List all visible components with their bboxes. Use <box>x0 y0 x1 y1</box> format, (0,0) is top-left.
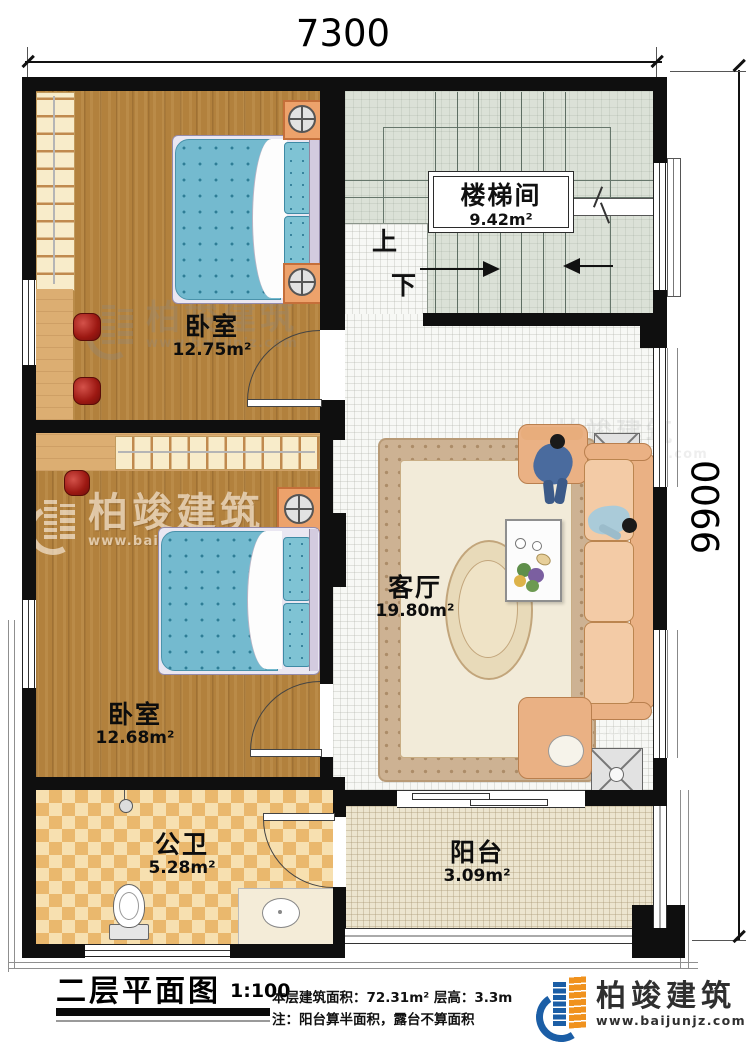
extension-line <box>692 940 746 941</box>
wall <box>22 77 667 91</box>
area-note: 本层建筑面积：72.31m² 层高：3.3m <box>272 986 512 1006</box>
brand-block: 柏竣建筑 www.baijunjz.com <box>596 980 746 1028</box>
balcony-railing <box>345 928 632 944</box>
bed-sheet <box>252 139 287 298</box>
roof-edge-line <box>8 962 698 963</box>
room-area: 12.68m² <box>70 729 200 748</box>
room-area: 5.28m² <box>117 859 247 878</box>
stair-tread <box>521 92 522 180</box>
arrow-left-icon <box>563 258 580 274</box>
sheet-title: 二层平面图 <box>56 966 221 1010</box>
room-area: 3.09m² <box>412 867 542 886</box>
stair-tread <box>457 92 458 180</box>
room-name: 卧室 <box>70 701 200 729</box>
window-icon <box>22 600 35 688</box>
dimension-line-right <box>738 70 740 941</box>
door-opening <box>320 330 345 400</box>
stool-icon <box>73 377 101 405</box>
window-sill <box>667 348 678 487</box>
balcony-railing <box>653 806 667 928</box>
room-label-bedroom-bottom: 卧室 12.68m² <box>70 701 200 748</box>
wall <box>653 77 667 163</box>
pillow-icon <box>283 603 311 667</box>
brand-logo-icon <box>538 976 592 1034</box>
stair-outline <box>610 127 611 313</box>
sink-drain <box>278 910 282 914</box>
room-area: 9.42m² <box>429 210 573 229</box>
stair-tread <box>543 92 544 180</box>
window-icon <box>653 630 666 758</box>
cup-icon <box>532 541 542 551</box>
toilet-bowl <box>119 892 139 920</box>
lamp-cross <box>301 270 303 294</box>
flower-icon <box>526 580 539 592</box>
wall <box>345 790 397 806</box>
door-leaf <box>263 813 335 821</box>
bed-sheet <box>247 531 282 669</box>
sofa-pillow <box>548 735 584 767</box>
arrow-right-icon <box>483 261 500 277</box>
dimension-line-top <box>25 61 662 63</box>
door-opening <box>320 684 333 757</box>
room-name: 楼梯间 <box>429 176 573 212</box>
door-leaf <box>250 749 322 757</box>
stair-outline <box>383 127 384 223</box>
window-icon <box>653 163 666 290</box>
shower-head-icon <box>119 799 133 813</box>
window-frame <box>667 158 681 297</box>
brand-url: www.baijunjz.com <box>596 1013 746 1028</box>
balcony-note: 注：阳台算半面积，露台不算面积 <box>272 1008 475 1028</box>
sofa-cushion <box>584 541 634 622</box>
window-icon <box>85 944 230 957</box>
title-underline-thin <box>56 1020 270 1022</box>
stair-down-label: 下 <box>391 266 416 302</box>
room-label-living: 客厅 19.80m² <box>350 574 480 621</box>
dimension-height: 9900 <box>687 449 727 565</box>
side-table-lamp <box>609 767 624 782</box>
wardrobe-rail <box>53 96 55 284</box>
wardrobe-rail <box>118 451 315 453</box>
bed-headboard <box>309 529 318 671</box>
sliding-door-panel <box>470 799 548 806</box>
wall <box>320 400 345 440</box>
pillow-icon <box>283 537 311 601</box>
door-opening <box>333 817 346 887</box>
wall <box>320 91 345 330</box>
room-name: 客厅 <box>350 574 480 602</box>
room-label-bedroom-top: 卧室 12.75m² <box>147 313 277 360</box>
stair-direction-arrow <box>420 268 483 270</box>
sofa-cushion <box>584 622 634 704</box>
title-underline-thick <box>56 1008 270 1016</box>
pillow-icon <box>284 142 312 214</box>
flower-icon <box>514 575 526 587</box>
room-label-bathroom: 公卫 5.28m² <box>117 831 247 878</box>
stair-direction-arrow <box>580 265 613 267</box>
wall <box>22 365 36 600</box>
stair-tread <box>565 92 566 180</box>
roof-edge-line <box>8 620 9 972</box>
room-name: 公卫 <box>117 831 247 859</box>
window-icon <box>22 280 35 365</box>
sofa-armrest <box>584 702 652 720</box>
stool-icon <box>64 470 90 496</box>
wall <box>22 420 320 433</box>
wall <box>320 440 333 684</box>
door-leaf <box>247 399 322 407</box>
wall <box>423 313 653 326</box>
window-icon <box>653 348 666 487</box>
desk-counter <box>36 289 73 420</box>
person-head <box>550 434 565 449</box>
room-name: 卧室 <box>147 313 277 341</box>
wall <box>230 944 345 958</box>
stool-icon <box>73 313 101 341</box>
wardrobe-icon <box>115 436 320 470</box>
wall <box>585 790 667 806</box>
room-name: 阳台 <box>412 839 542 867</box>
floor-plan-sheet: 7300 9900 柏竣建筑www.baijunjz.com 柏竣建筑www.b… <box>0 0 750 1044</box>
person-head <box>622 518 637 533</box>
wall <box>640 313 667 348</box>
roof-edge-line <box>688 790 689 968</box>
wall <box>22 77 36 280</box>
stair-tread <box>478 92 479 180</box>
cup-icon <box>515 538 526 549</box>
stair-tread <box>500 92 501 180</box>
lamp-cross <box>298 496 300 522</box>
wall-pilaster <box>333 513 346 587</box>
room-label-balcony: 阳台 3.09m² <box>412 839 542 886</box>
dimension-width: 7300 <box>278 12 408 55</box>
stair-up-label: 上 <box>372 222 397 258</box>
wall <box>22 688 36 944</box>
wall <box>22 777 345 790</box>
brand-name: 柏竣建筑 <box>596 980 746 1013</box>
room-area: 12.75m² <box>147 341 277 360</box>
stair-break-band <box>572 198 653 216</box>
stairwell-label-box: 楼梯间 9.42m² <box>428 171 574 233</box>
stair-tread <box>435 92 436 180</box>
wall <box>22 944 85 958</box>
window-sill <box>667 630 678 758</box>
wardrobe-icon <box>36 92 75 291</box>
room-area: 19.80m² <box>350 602 480 621</box>
roof-edge-line <box>14 620 15 968</box>
lamp-cross <box>301 107 303 131</box>
wall <box>653 487 667 630</box>
stair-outline <box>383 127 610 128</box>
